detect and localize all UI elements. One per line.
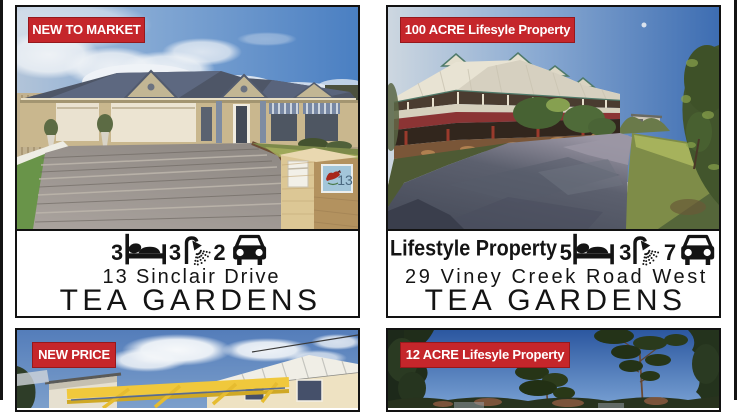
svg-text:3: 3 <box>169 240 181 265</box>
svg-text:2: 2 <box>213 240 225 265</box>
svg-text:7: 7 <box>664 240 676 265</box>
svg-text:3: 3 <box>619 240 631 265</box>
svg-text:13: 13 <box>337 172 353 188</box>
svg-text:5: 5 <box>560 240 572 265</box>
svg-text:Lifestyle Property: Lifestyle Property <box>390 237 557 261</box>
svg-text:3: 3 <box>112 240 123 265</box>
